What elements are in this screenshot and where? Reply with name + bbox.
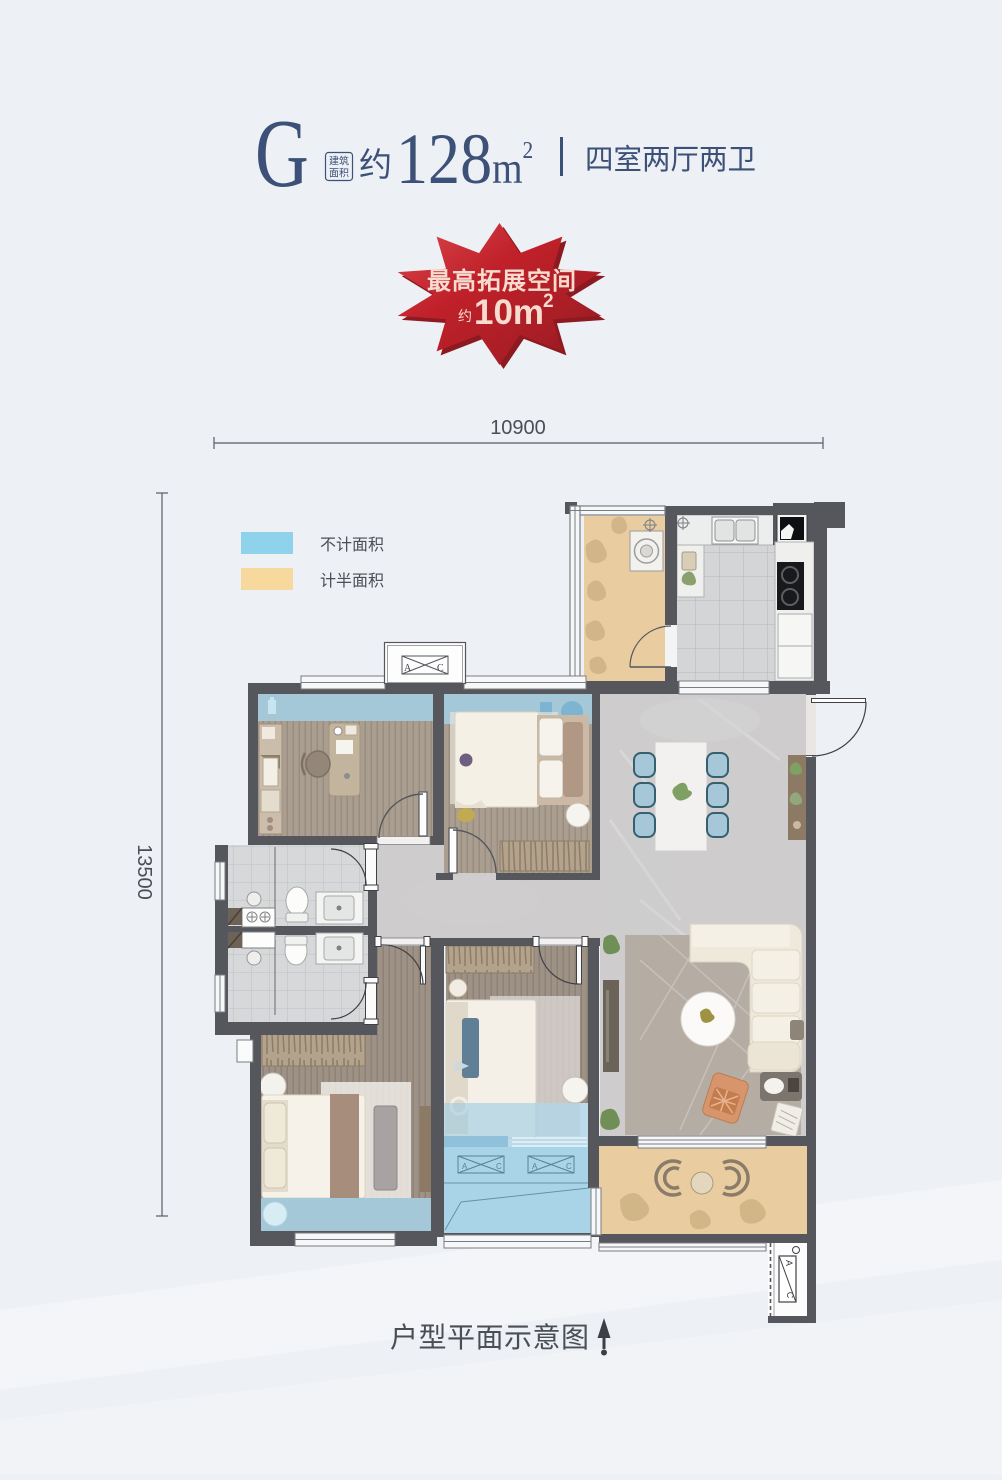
svg-text:C: C	[437, 663, 444, 674]
svg-text:约: 约	[359, 146, 392, 183]
svg-text:最高拓展空间: 最高拓展空间	[427, 267, 577, 295]
svg-text:C: C	[785, 1292, 795, 1299]
svg-text:2: 2	[543, 291, 554, 312]
svg-text:A: A	[532, 1162, 538, 1171]
svg-text:户型平面示意图: 户型平面示意图	[390, 1322, 590, 1353]
svg-text:A: A	[404, 663, 412, 674]
svg-text:G: G	[255, 98, 309, 207]
svg-text:10900: 10900	[490, 417, 546, 439]
svg-text:13500: 13500	[133, 844, 155, 900]
svg-text:C: C	[496, 1162, 502, 1171]
svg-text:10m: 10m	[474, 293, 544, 332]
svg-text:A: A	[462, 1162, 468, 1171]
svg-text:不计面积: 不计面积	[320, 536, 384, 554]
svg-text:面积: 面积	[329, 168, 349, 180]
svg-text:建筑: 建筑	[329, 155, 349, 168]
svg-text:计半面积: 计半面积	[320, 572, 384, 590]
svg-text:四室两厅两卫: 四室两厅两卫	[585, 144, 756, 176]
svg-text:C: C	[566, 1162, 572, 1171]
svg-text:A: A	[784, 1260, 794, 1266]
svg-text:约: 约	[458, 308, 472, 324]
